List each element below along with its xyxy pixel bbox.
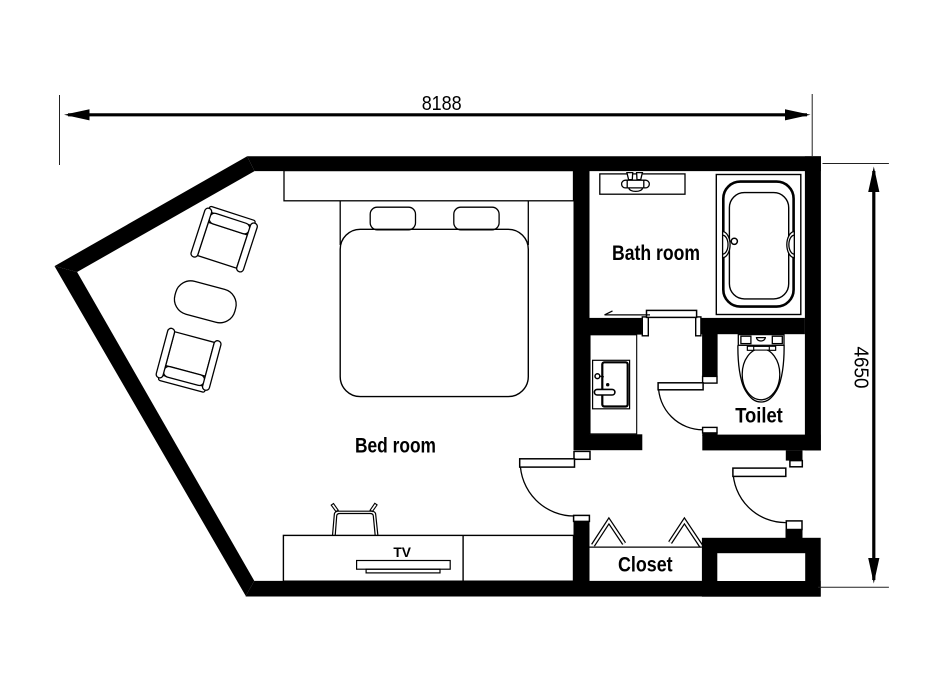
svg-text:Closet: Closet bbox=[618, 553, 673, 576]
svg-text:TV: TV bbox=[393, 545, 411, 560]
svg-text:4650: 4650 bbox=[850, 347, 872, 389]
svg-text:Bath room: Bath room bbox=[612, 242, 700, 265]
svg-text:Bed room: Bed room bbox=[355, 434, 436, 457]
svg-text:Toilet: Toilet bbox=[735, 404, 783, 427]
svg-text:8188: 8188 bbox=[422, 93, 462, 115]
